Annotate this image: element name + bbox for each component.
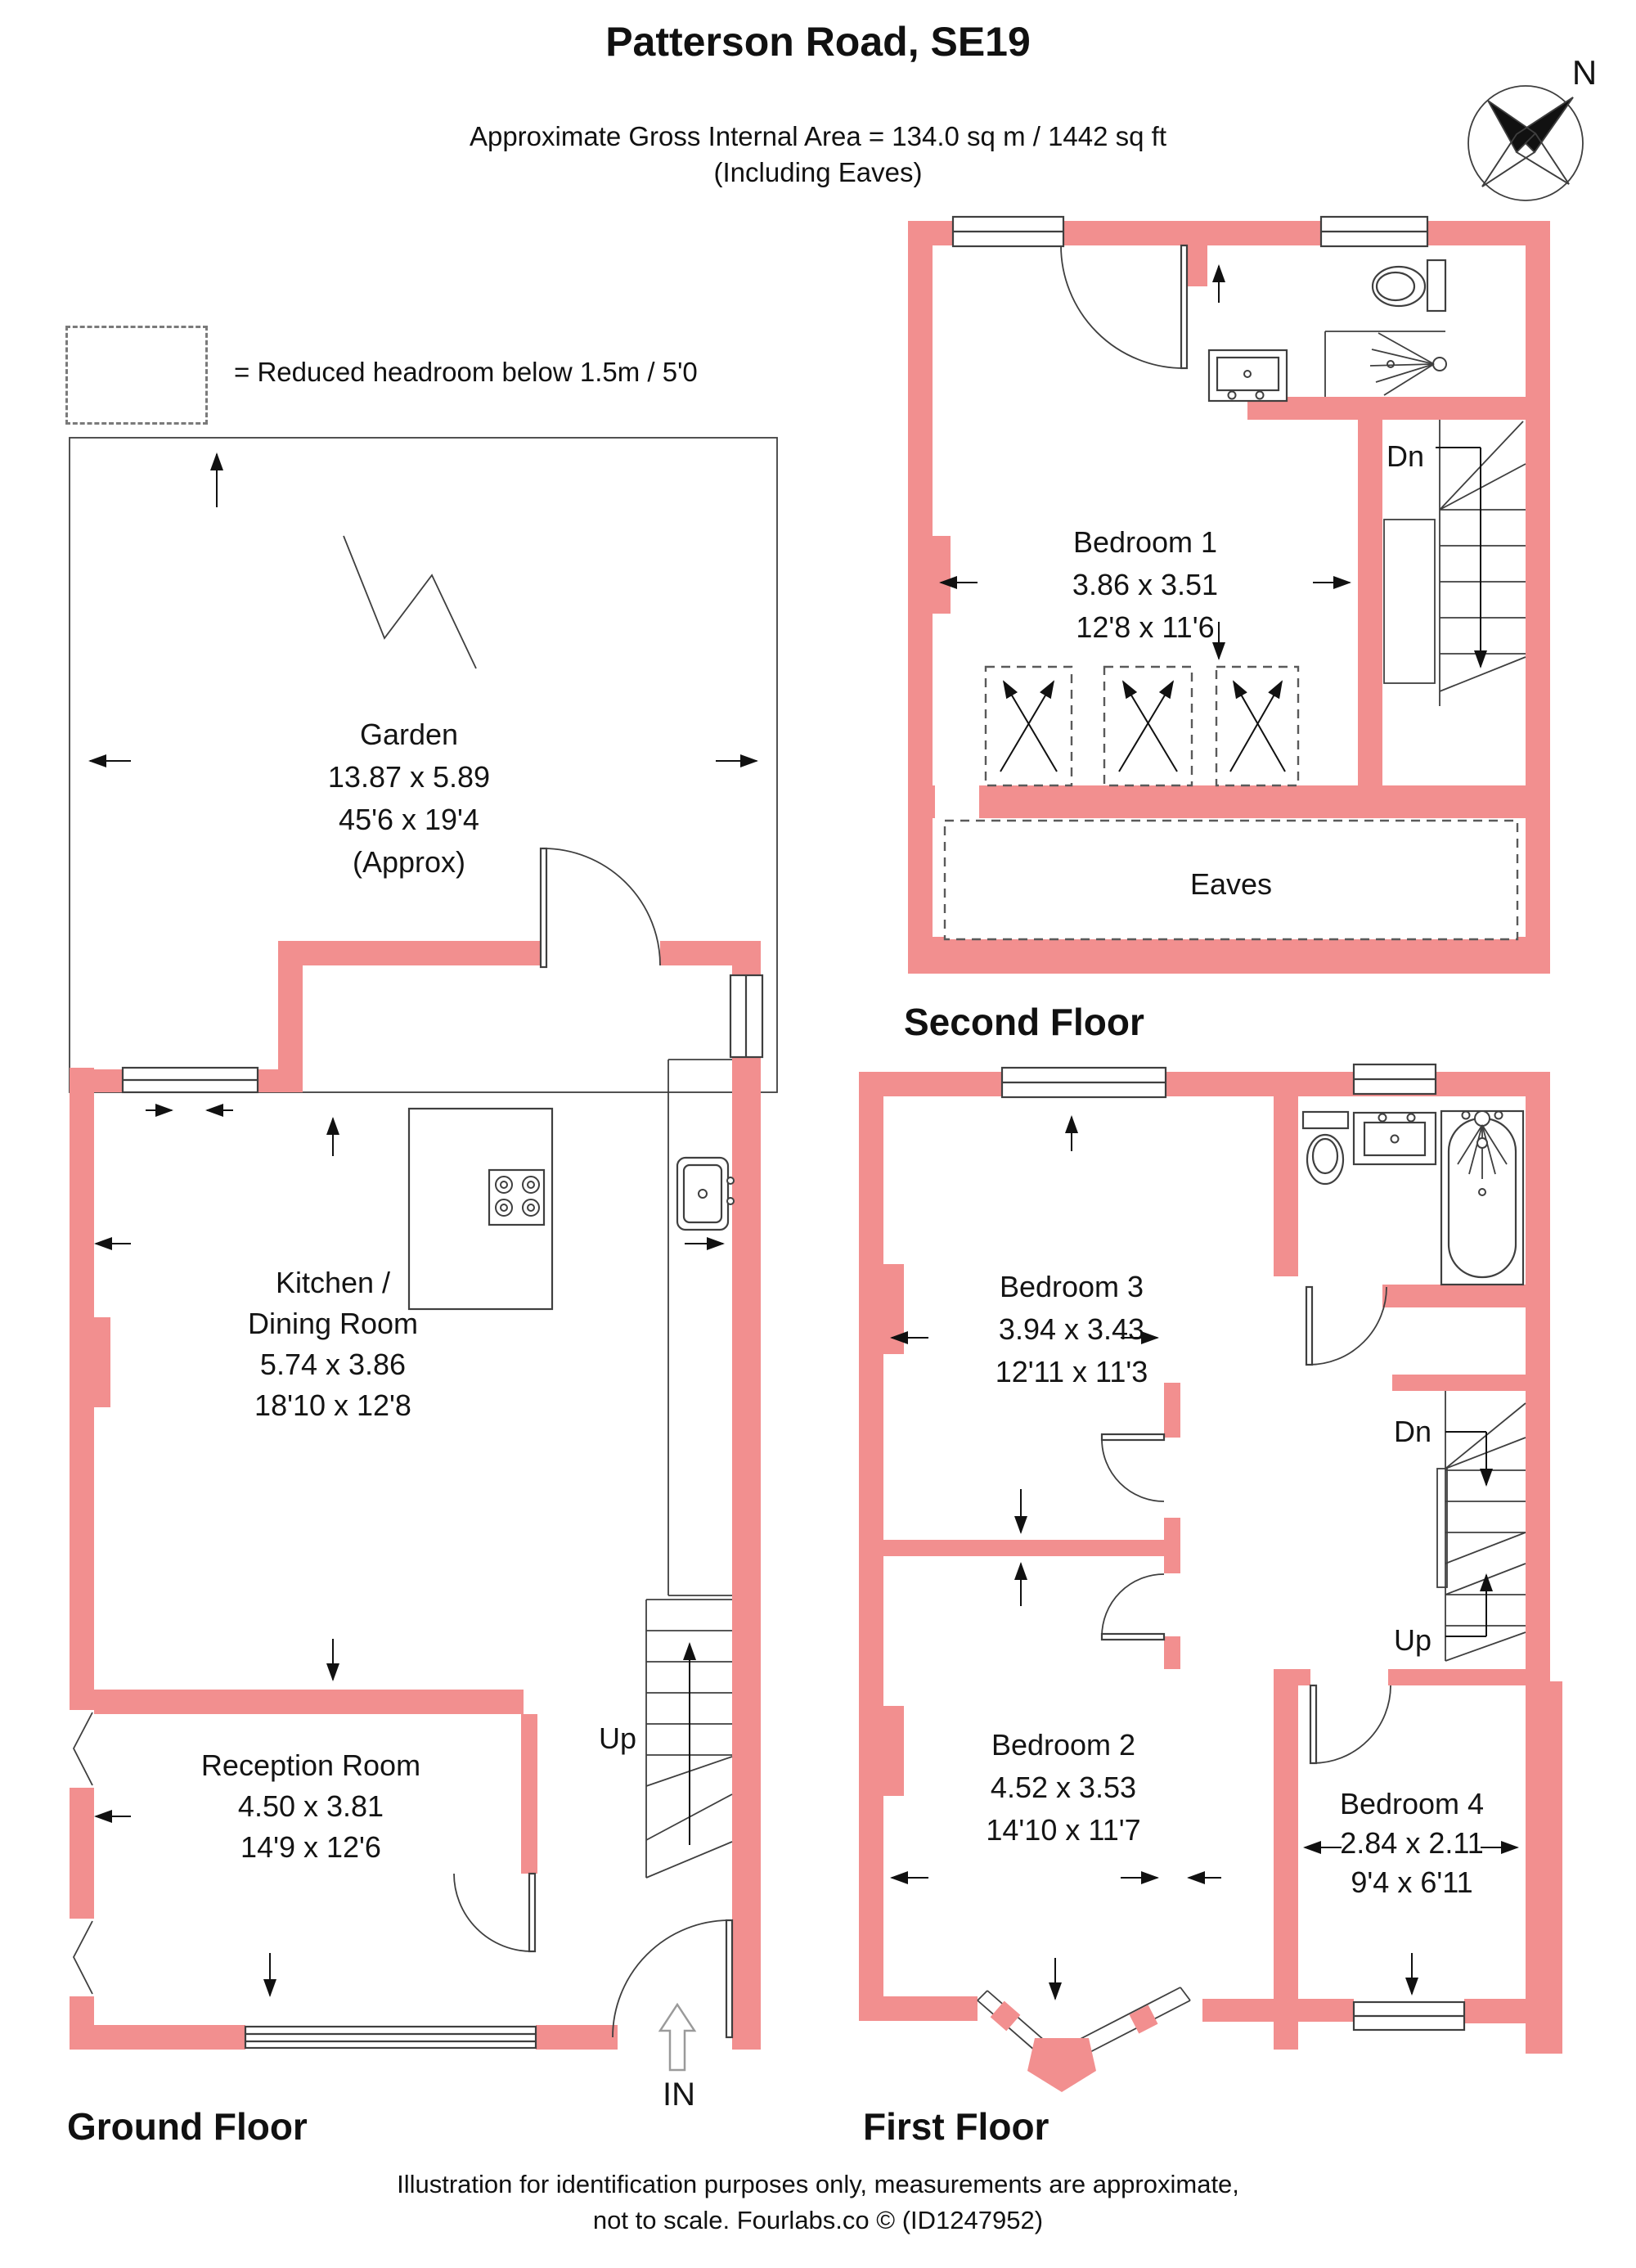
bedroom2-label: Bedroom 2 4.52 x 3.53 14'10 x 11'7 <box>986 1728 1140 1847</box>
bedroom1-label: Bedroom 1 3.86 x 3.51 12'8 x 11'6 <box>1072 525 1218 644</box>
wardrobe-3 <box>1216 667 1298 785</box>
ground-floor-plan: Garden 13.87 x 5.89 45'6 x 19'4 (Approx) <box>49 430 802 2127</box>
reduced-headroom-label: = Reduced headroom below 1.5m / 5'0 <box>234 357 698 388</box>
dn-label: Dn <box>1394 1415 1431 1448</box>
up-label: Up <box>1394 1623 1431 1657</box>
kitchen-window <box>123 1068 258 1110</box>
wardrobe-2 <box>1104 667 1192 785</box>
front-bay-window <box>978 1987 1190 2092</box>
compass-star <box>1482 97 1573 187</box>
bathroom-window <box>1354 1064 1436 1094</box>
second-floor-plan: Dn Eaves Bedroom 1 3.86 x 3.51 12'8 x 11… <box>900 209 1562 1035</box>
bay-apex <box>1027 2038 1096 2092</box>
first-stairs <box>1437 1391 1526 1661</box>
svg-text:Reception Room: Reception Room <box>201 1748 420 1782</box>
svg-text:Bedroom 2: Bedroom 2 <box>991 1728 1135 1762</box>
kitchen-label: Kitchen / Dining Room 5.74 x 3.86 18'10 … <box>248 1266 418 1422</box>
svg-text:4.50 x 3.81: 4.50 x 3.81 <box>238 1789 384 1823</box>
dn-label: Dn <box>1387 439 1424 473</box>
ground-walls <box>70 941 761 2050</box>
svg-text:2.84 x 2.11: 2.84 x 2.11 <box>1340 1826 1483 1860</box>
eaves-area: Eaves <box>945 821 1517 939</box>
disclaimer-line-2: not to scale. Fourlabs.co © (ID1247952) <box>0 2206 1636 2235</box>
reception-label: Reception Room 4.50 x 3.81 14'9 x 12'6 <box>201 1748 420 1864</box>
kitchen-sink-icon <box>677 1158 734 1230</box>
svg-text:12'11 x 11'3: 12'11 x 11'3 <box>996 1355 1148 1388</box>
kitchen-island <box>409 1109 552 1309</box>
svg-text:Bedroom 1: Bedroom 1 <box>1073 525 1217 559</box>
eaves-label: Eaves <box>1190 867 1272 901</box>
bedroom4-label: Bedroom 4 2.84 x 2.11 9'4 x 6'11 <box>1340 1787 1484 1899</box>
svg-text:4.52 x 3.53: 4.52 x 3.53 <box>991 1771 1136 1804</box>
svg-text:Bedroom 3: Bedroom 3 <box>1000 1270 1144 1303</box>
svg-text:3.94 x 3.43: 3.94 x 3.43 <box>999 1312 1144 1346</box>
stair-wall <box>1358 420 1382 785</box>
svg-text:(Approx): (Approx) <box>353 845 465 879</box>
kitchen-counter <box>668 1060 734 1595</box>
first-floor-plan: Dn Up Bedroom 3 3.94 x 3.43 12'11 x 11'3 <box>851 1060 1571 2099</box>
first-floor-title: First Floor <box>863 2104 1049 2149</box>
garden-break-line <box>344 536 476 668</box>
toilet-icon <box>1373 260 1445 311</box>
gross-area-line: Approximate Gross Internal Area = 134.0 … <box>0 121 1636 152</box>
including-eaves-line: (Including Eaves) <box>0 157 1636 188</box>
bathroom-wall <box>1382 1285 1526 1307</box>
back-door <box>541 848 660 967</box>
hob-icon <box>489 1170 544 1225</box>
svg-text:9'4 x 6'11: 9'4 x 6'11 <box>1351 1865 1472 1899</box>
bathroom-door <box>1306 1287 1387 1365</box>
bedroom3-door <box>1102 1434 1164 1501</box>
shower-icon <box>1325 331 1446 397</box>
chimney-breast <box>94 1317 110 1407</box>
ground-floor-title: Ground Floor <box>67 2104 308 2149</box>
side-window <box>730 975 762 1057</box>
wardrobe-1 <box>986 667 1072 785</box>
reduced-headroom-swatch <box>65 326 208 425</box>
svg-text:14'9 x 12'6: 14'9 x 12'6 <box>240 1830 381 1864</box>
bathroom-wall <box>1274 1096 1298 1276</box>
disclaimer-line-1: Illustration for identification purposes… <box>0 2170 1636 2199</box>
bathroom-door <box>1061 245 1187 368</box>
svg-text:18'10 x 12'8: 18'10 x 12'8 <box>254 1388 411 1422</box>
up-label: Up <box>599 1721 636 1755</box>
bedroom4-door <box>1310 1685 1391 1763</box>
chimney-breast <box>883 1706 904 1796</box>
stair-wall <box>1392 1375 1526 1391</box>
bath-icon <box>1441 1111 1523 1285</box>
entrance-arrow-icon <box>660 2005 694 2070</box>
top-window <box>1002 1068 1166 1097</box>
reception-door <box>454 1874 535 1951</box>
svg-text:3.86 x 3.51: 3.86 x 3.51 <box>1072 568 1218 601</box>
front-bay-window <box>245 2027 536 2048</box>
svg-text:13.87 x 5.89: 13.87 x 5.89 <box>328 760 490 794</box>
bedroom4-window <box>1354 2002 1464 2030</box>
svg-text:12'8 x 11'6: 12'8 x 11'6 <box>1076 610 1214 644</box>
sink-icon <box>1354 1113 1436 1164</box>
svg-text:5.74 x 3.86: 5.74 x 3.86 <box>260 1348 406 1381</box>
ground-stairs <box>646 1600 732 1878</box>
svg-text:14'10 x 11'7: 14'10 x 11'7 <box>986 1813 1140 1847</box>
compass-icon: N <box>1464 45 1620 217</box>
bathroom-wall <box>1247 397 1526 420</box>
svg-text:Garden: Garden <box>360 718 458 751</box>
kitchen-reception-wall <box>94 1690 524 1714</box>
bed3-bed2-wall <box>883 1540 1164 1556</box>
chimney-breast <box>933 536 951 614</box>
chimney-breast <box>883 1264 904 1354</box>
top-window <box>953 217 1063 246</box>
svg-text:Dining Room: Dining Room <box>248 1307 418 1340</box>
svg-text:Bedroom 4: Bedroom 4 <box>1340 1787 1484 1820</box>
toilet-icon <box>1303 1112 1348 1184</box>
bathroom-window <box>1321 217 1427 246</box>
sink-icon <box>1209 350 1287 401</box>
in-label: IN <box>663 2077 695 2113</box>
bedroom2-door <box>1102 1574 1164 1640</box>
compass-n-label: N <box>1572 53 1597 92</box>
second-floor-title: Second Floor <box>904 1000 1144 1044</box>
svg-text:45'6 x 19'4: 45'6 x 19'4 <box>339 803 479 836</box>
bedroom3-label: Bedroom 3 3.94 x 3.43 12'11 x 11'3 <box>996 1270 1148 1388</box>
floorplan-page: Patterson Road, SE19 Approximate Gross I… <box>0 0 1636 2268</box>
garden-label: Garden 13.87 x 5.89 45'6 x 19'4 (Approx) <box>328 718 490 879</box>
page-title: Patterson Road, SE19 <box>0 18 1636 65</box>
svg-text:Kitchen /: Kitchen / <box>276 1266 390 1299</box>
